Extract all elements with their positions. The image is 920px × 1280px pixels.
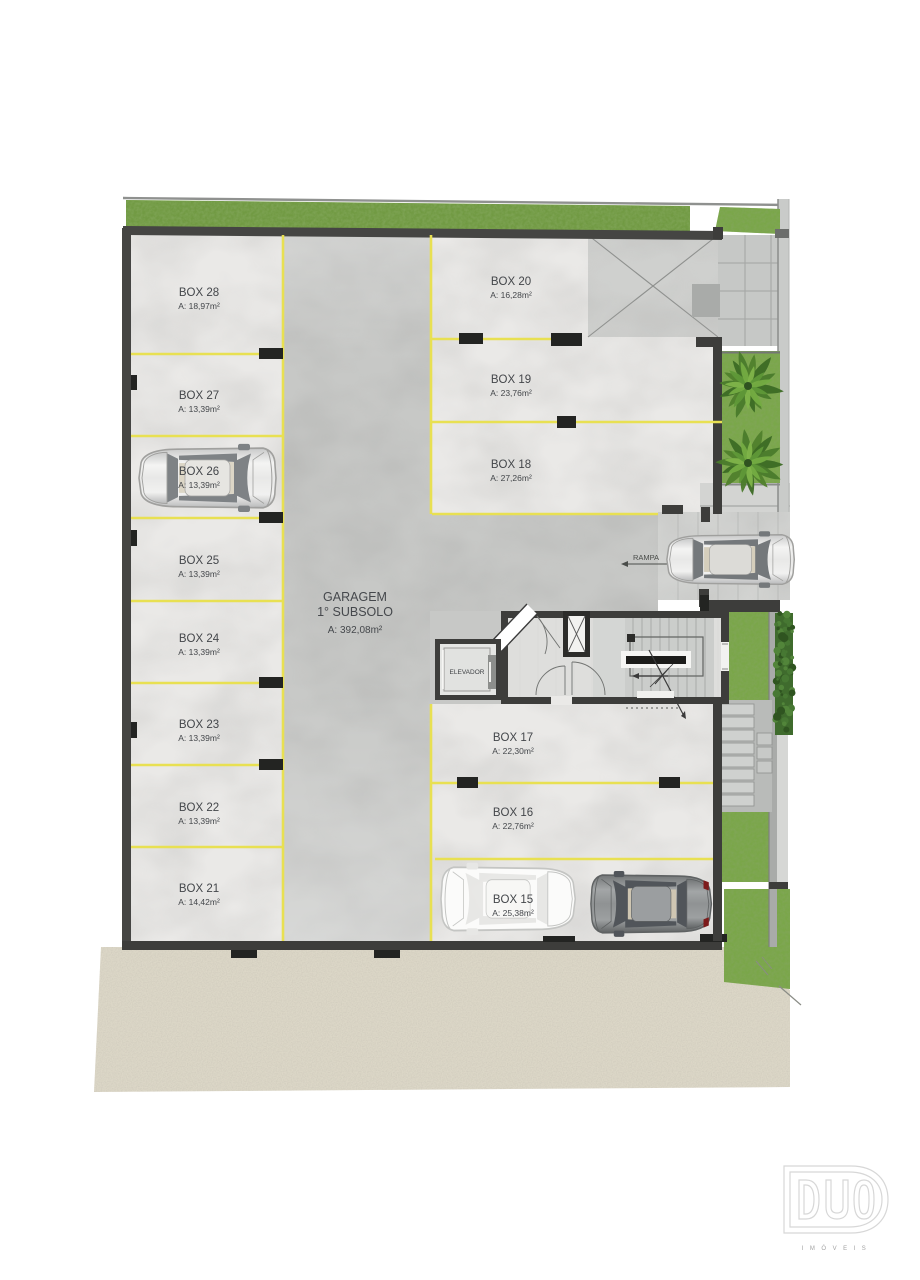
svg-text:BOX 28: BOX 28 (179, 287, 219, 299)
svg-text:A: 13,39m²: A: 13,39m² (178, 480, 220, 490)
svg-text:GARAGEM: GARAGEM (323, 590, 387, 604)
svg-text:ELEVADOR: ELEVADOR (450, 669, 485, 676)
svg-text:A: 18,97m²: A: 18,97m² (178, 301, 220, 311)
svg-text:1° SUBSOLO: 1° SUBSOLO (317, 605, 393, 619)
svg-text:IMÓVEIS: IMÓVEIS (802, 1245, 873, 1252)
svg-text:A: 25,38m²: A: 25,38m² (492, 908, 534, 918)
svg-text:BOX 18: BOX 18 (491, 459, 531, 471)
svg-text:BOX 21: BOX 21 (179, 883, 219, 895)
svg-text:BOX 22: BOX 22 (179, 802, 219, 814)
svg-text:A: 13,39m²: A: 13,39m² (178, 733, 220, 743)
svg-text:A: 22,30m²: A: 22,30m² (492, 746, 534, 756)
svg-text:BOX 25: BOX 25 (179, 555, 219, 567)
svg-text:BOX 23: BOX 23 (179, 719, 219, 731)
svg-text:A: 13,39m²: A: 13,39m² (178, 404, 220, 414)
svg-text:A: 13,39m²: A: 13,39m² (178, 816, 220, 826)
svg-text:A: 27,26m²: A: 27,26m² (490, 473, 532, 483)
svg-text:BOX 15: BOX 15 (493, 894, 533, 906)
svg-text:A: 13,39m²: A: 13,39m² (178, 647, 220, 657)
svg-text:BOX 26: BOX 26 (179, 466, 219, 478)
svg-text:A: 16,28m²: A: 16,28m² (490, 290, 532, 300)
svg-text:A: 23,76m²: A: 23,76m² (490, 388, 532, 398)
svg-text:BOX 17: BOX 17 (493, 732, 533, 744)
svg-text:A: 392,08m²: A: 392,08m² (328, 625, 383, 636)
svg-text:BOX 20: BOX 20 (491, 276, 531, 288)
svg-text:A: 13,39m²: A: 13,39m² (178, 569, 220, 579)
svg-text:BOX 19: BOX 19 (491, 374, 531, 386)
svg-text:A: 14,42m²: A: 14,42m² (178, 897, 220, 907)
svg-text:BOX 16: BOX 16 (493, 807, 533, 819)
svg-text:BOX 24: BOX 24 (179, 633, 220, 645)
svg-text:RAMPA: RAMPA (633, 553, 659, 562)
svg-text:BOX 27: BOX 27 (179, 390, 219, 402)
svg-text:A: 22,76m²: A: 22,76m² (492, 821, 534, 831)
